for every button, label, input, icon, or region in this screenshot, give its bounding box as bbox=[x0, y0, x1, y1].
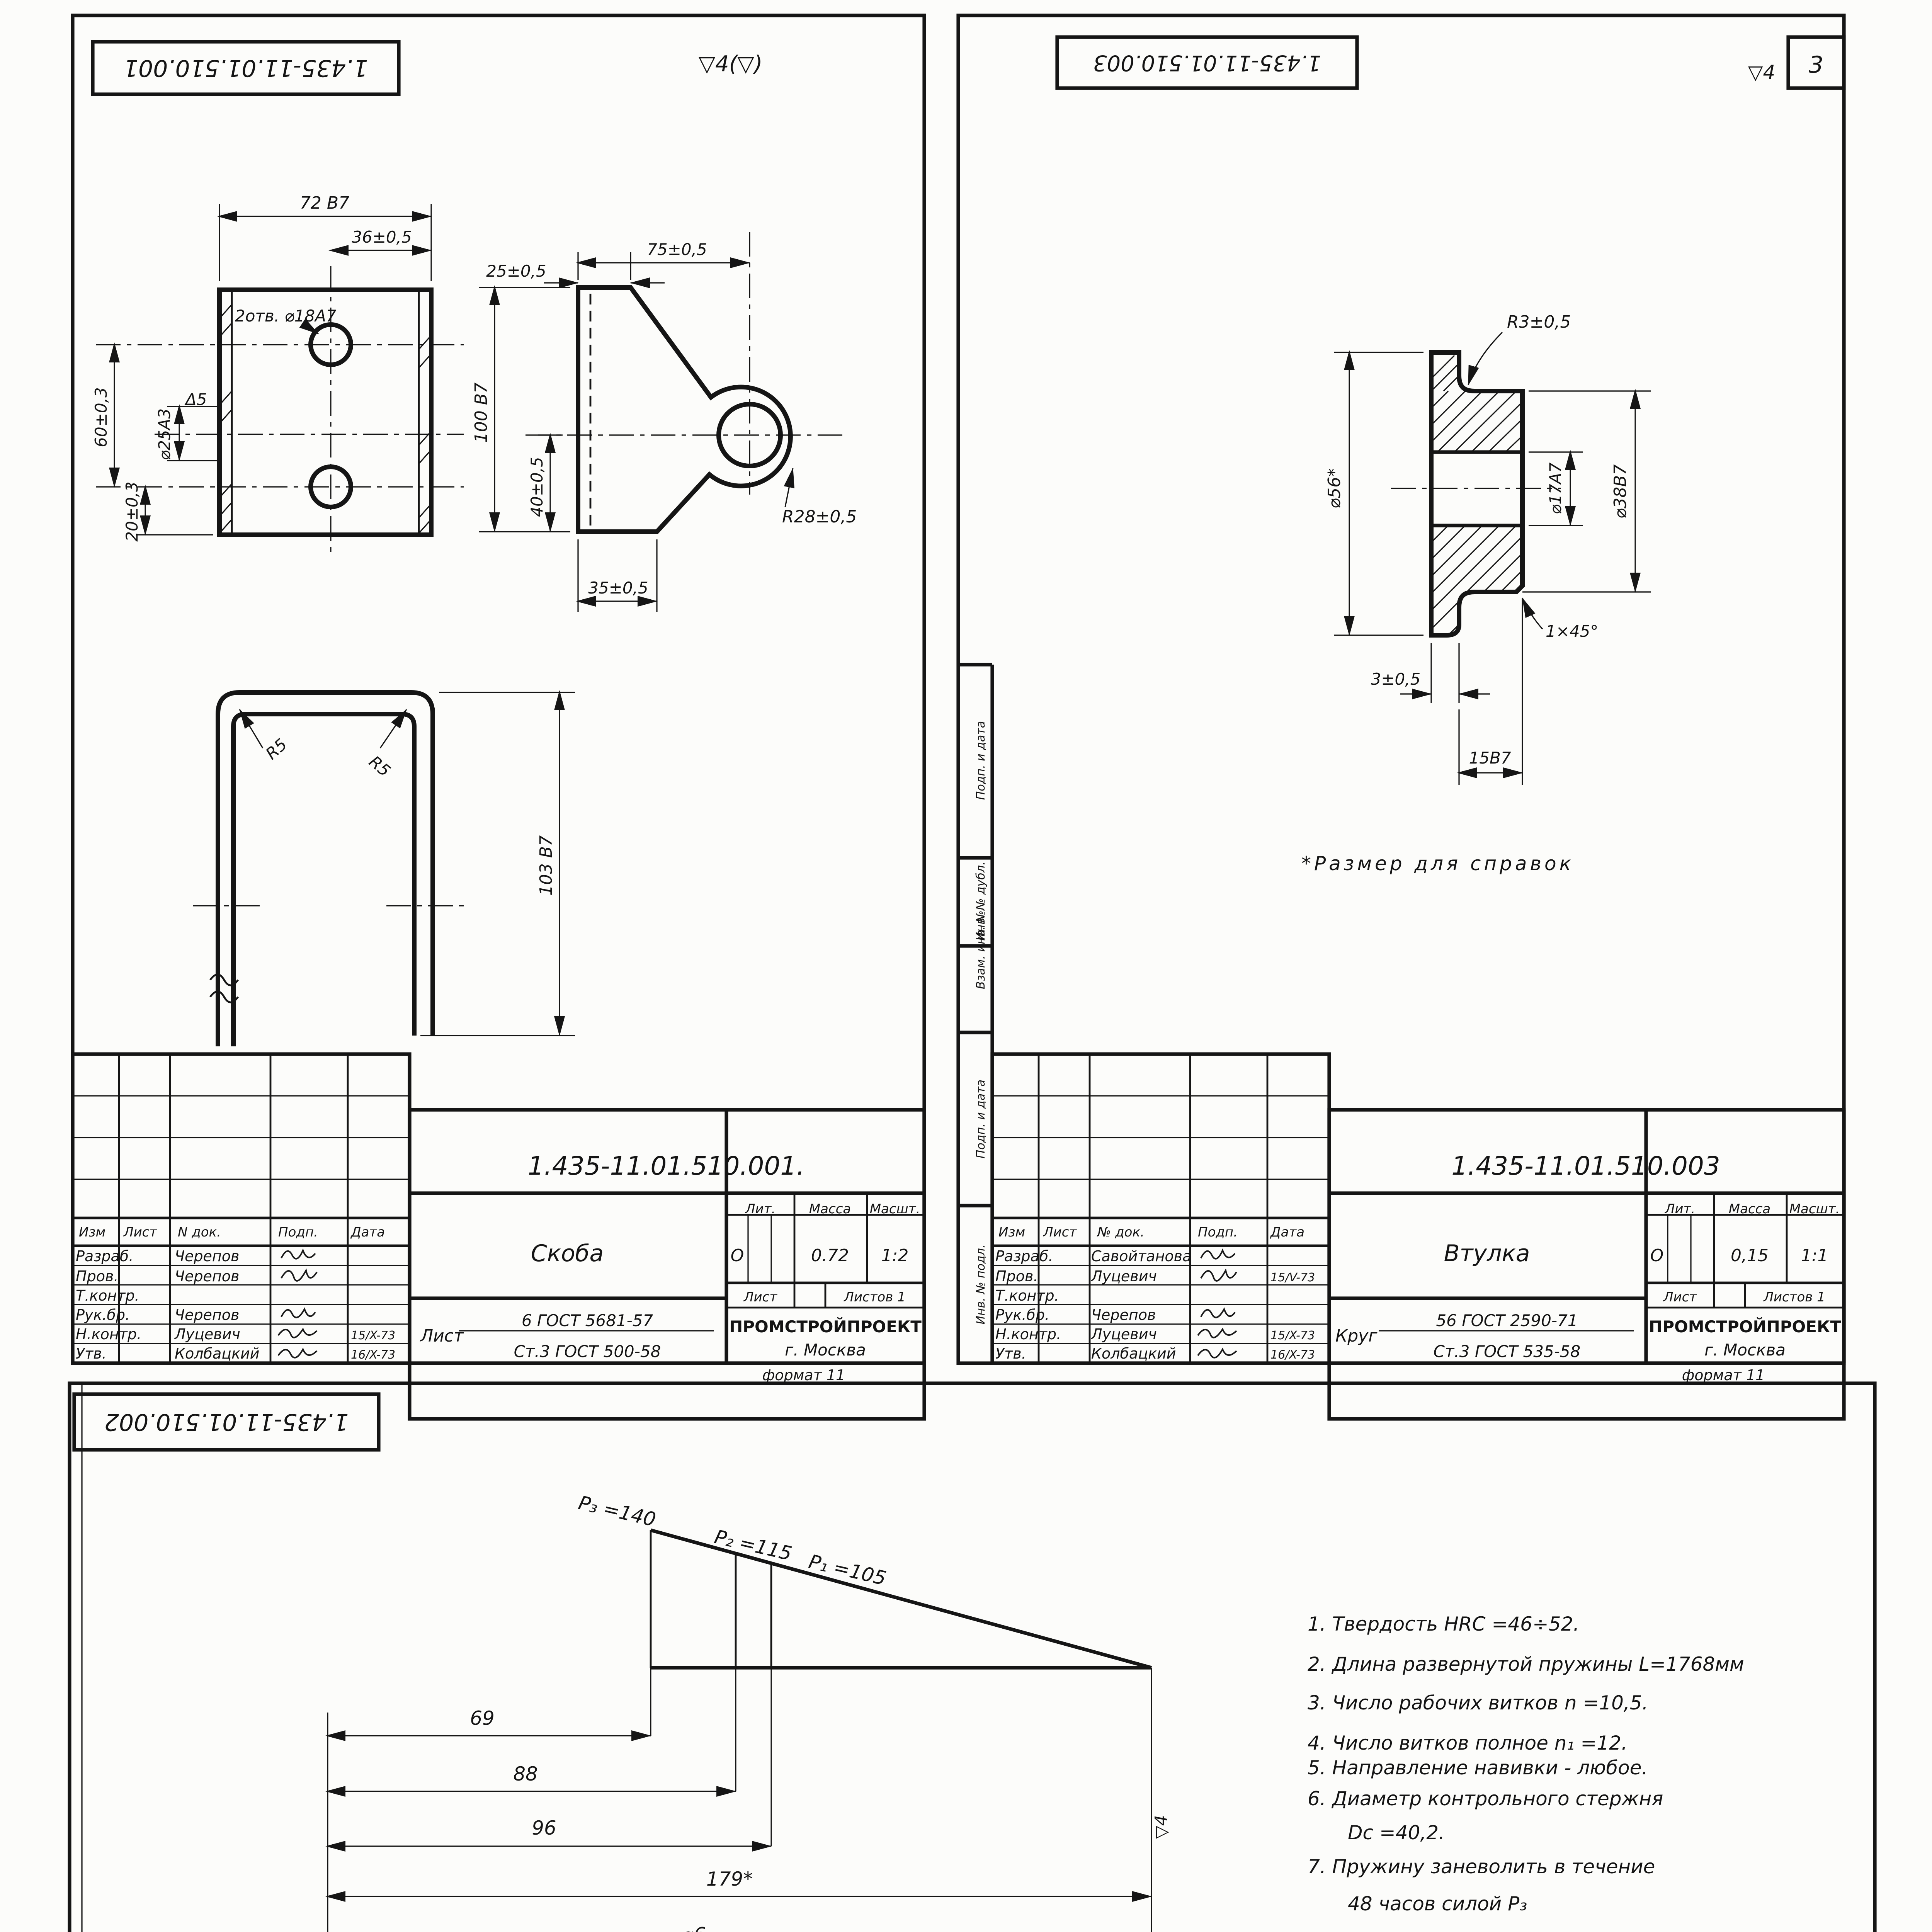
s2-sheet-label: Лист bbox=[1663, 1289, 1697, 1305]
dim-d17: ⌀17А7 bbox=[1546, 463, 1565, 514]
sheet2-corner-code: 1.435-11.01.510.003 bbox=[1093, 50, 1321, 75]
dim-35: 35±0,5 bbox=[588, 578, 648, 597]
margin-label-4: Инв. № подл. bbox=[974, 1245, 988, 1325]
dim-25a3: ⌀25А3 bbox=[155, 408, 174, 460]
s1-row4-name: Луцевич bbox=[174, 1326, 240, 1343]
s2-material-prefix: Круг bbox=[1335, 1326, 1378, 1346]
dim-100: 100 В7 bbox=[471, 383, 491, 443]
s2-mass-label: Масса bbox=[1729, 1201, 1770, 1217]
s1-mass-label: Масса bbox=[809, 1201, 851, 1217]
s1-row5-name: Колбацкий bbox=[175, 1345, 259, 1362]
s1-city: г. Москва bbox=[785, 1340, 866, 1359]
s2-col-data: Дата bbox=[1270, 1225, 1304, 1240]
s2-row4-date: 15/X-73 bbox=[1270, 1329, 1315, 1342]
dim-lug25: 25±0,5 bbox=[486, 262, 546, 281]
s2-col-podp: Подп. bbox=[1198, 1225, 1238, 1240]
s2-row0-role: Разраб. bbox=[995, 1248, 1053, 1265]
s1-scale-label: Масшт. bbox=[870, 1201, 920, 1217]
finish-mark-5: Δ5 bbox=[184, 390, 207, 409]
s2-row5-role: Утв. bbox=[995, 1345, 1026, 1362]
s1-row2-role: Т.контр. bbox=[76, 1287, 139, 1304]
s1-row0-name: Черепов bbox=[175, 1248, 239, 1265]
s1-material-top: 6 ГОСТ 5681-57 bbox=[522, 1311, 653, 1330]
note-5: 5. Направление навивки - любое. bbox=[1308, 1757, 1648, 1779]
s1-material-bottom: Ст.3 ГОСТ 500-58 bbox=[514, 1342, 661, 1361]
s2-row1-role: Пров. bbox=[995, 1268, 1038, 1285]
s2-org: ПРОМСТРОЙПРОЕКТ bbox=[1649, 1317, 1841, 1336]
s1-row5-role: Утв. bbox=[76, 1345, 107, 1362]
dim-chamfer: 1×45° bbox=[1546, 622, 1598, 641]
s2-col-izm: Изм bbox=[998, 1225, 1025, 1240]
s1-part-name: Скоба bbox=[531, 1240, 604, 1267]
s1-mass: 0.72 bbox=[811, 1246, 849, 1265]
s1-sheet-label: Лист bbox=[743, 1289, 777, 1305]
note-7b: 48 часов силой P₃ bbox=[1348, 1893, 1527, 1915]
s2-part-name: Втулка bbox=[1444, 1240, 1530, 1267]
note-1: 1. Твердость HRC =46÷52. bbox=[1308, 1613, 1579, 1635]
sheet2-reference-note: *Размер для справок bbox=[1301, 852, 1574, 875]
finish-mark-4: ▽4 bbox=[1151, 1815, 1171, 1839]
s2-material-bottom: Ст.3 ГОСТ 535-58 bbox=[1434, 1342, 1581, 1361]
s1-col-podp: Подп. bbox=[278, 1225, 318, 1240]
drawing-page: 1.435-11.01.510.001 ▽4(▽) 72 В7 36±0,5 2… bbox=[0, 0, 1932, 1932]
s1-sheets-label: Листов 1 bbox=[843, 1289, 905, 1305]
note-6b: Dс =40,2. bbox=[1348, 1821, 1445, 1844]
s2-scale-label: Масшт. bbox=[1789, 1201, 1840, 1217]
s2-scale: 1:1 bbox=[1801, 1246, 1828, 1265]
s2-format-note: формат 11 bbox=[1682, 1367, 1765, 1384]
s1-row1-name: Черепов bbox=[175, 1268, 239, 1285]
s1-lit-label: Лит. bbox=[745, 1201, 776, 1217]
sheet-page-number: 3 bbox=[1809, 51, 1823, 78]
s1-material-prefix: Лист bbox=[420, 1326, 464, 1346]
dim-20: 20±0,3 bbox=[122, 481, 141, 541]
dim-96: 96 bbox=[532, 1817, 556, 1839]
sheet2-roughness-mark: ▽4 bbox=[1748, 61, 1775, 83]
note-2-holes: 2отв. ⌀18А7 bbox=[235, 306, 337, 325]
dim-103: 103 В7 bbox=[536, 835, 556, 896]
s2-col-ndok: № док. bbox=[1097, 1225, 1145, 1240]
margin-label-2: Взам. инв. № bbox=[974, 910, 988, 989]
dim-75: 75±0,5 bbox=[647, 240, 707, 259]
s1-row5-date: 16/X-73 bbox=[351, 1348, 395, 1362]
s1-row3-role: Рук.бр. bbox=[76, 1306, 130, 1323]
dim-88: 88 bbox=[513, 1763, 538, 1785]
s1-row0-role: Разраб. bbox=[76, 1248, 133, 1265]
s1-row4-date: 15/X-73 bbox=[351, 1329, 395, 1342]
margin-label-3: Подп. и дата bbox=[974, 1080, 988, 1158]
dim-40: 40±0,5 bbox=[527, 457, 546, 517]
margin-label-0: Подп. и дата bbox=[974, 721, 988, 800]
s1-col-data: Дата bbox=[350, 1225, 385, 1240]
s1-designation: 1.435-11.01.510.001. bbox=[528, 1151, 805, 1181]
dim-60: 60±0,3 bbox=[92, 387, 111, 447]
note-7: 7. Пружину заневолить в течение bbox=[1308, 1855, 1655, 1878]
note-8: 8. Характеристика пружины, должна bbox=[1308, 1930, 1691, 1932]
sheet3-corner-code: 1.435-11.01.510.002 bbox=[104, 1408, 349, 1435]
note-2: 2. Длина развернутой пружины L=1768мм bbox=[1308, 1653, 1744, 1675]
dim-15: 15В7 bbox=[1469, 748, 1511, 767]
dim-r28: R28±0,5 bbox=[782, 507, 857, 527]
s2-row5-name: Колбацкий bbox=[1091, 1345, 1176, 1362]
dim-179: 179* bbox=[706, 1868, 753, 1890]
sheet1-roughness-mark: ▽4(▽) bbox=[699, 51, 762, 77]
s2-lit: О bbox=[1650, 1246, 1664, 1265]
s2-city: г. Москва bbox=[1704, 1340, 1786, 1359]
dim-72: 72 В7 bbox=[300, 193, 349, 213]
s1-row4-role: Н.контр. bbox=[76, 1326, 141, 1343]
s2-row3-role: Рук.бр. bbox=[995, 1306, 1049, 1323]
s2-sheets-label: Листов 1 bbox=[1763, 1289, 1825, 1305]
s2-row2-role: Т.контр. bbox=[995, 1287, 1059, 1304]
s2-row5-date: 16/X-73 bbox=[1270, 1348, 1315, 1362]
s1-row3-name: Черепов bbox=[175, 1306, 239, 1323]
s1-col-list: Лист bbox=[123, 1225, 157, 1240]
s2-mass: 0,15 bbox=[1731, 1246, 1769, 1265]
s2-row0-name: Савойтанова bbox=[1091, 1248, 1191, 1265]
s2-material-top: 56 ГОСТ 2590-71 bbox=[1436, 1311, 1578, 1330]
s1-row1-role: Пров. bbox=[76, 1268, 118, 1285]
dim-r3: R3±0,5 bbox=[1507, 312, 1571, 332]
dim-69: 69 bbox=[470, 1707, 495, 1730]
s2-lit-label: Лит. bbox=[1664, 1201, 1695, 1217]
s2-designation: 1.435-11.01.510.003 bbox=[1451, 1151, 1720, 1181]
s1-lit: О bbox=[731, 1246, 744, 1265]
s2-row1-name: Луцевич bbox=[1090, 1268, 1157, 1285]
note-6: 6. Диаметр контрольного стержня bbox=[1308, 1787, 1663, 1810]
dim-d38: ⌀38В7 bbox=[1611, 464, 1630, 519]
sheet1-corner-code: 1.435-11.01.510.001 bbox=[124, 54, 368, 82]
s2-col-list: Лист bbox=[1043, 1225, 1077, 1240]
s2-row4-role: Н.контр. bbox=[995, 1326, 1061, 1343]
s1-org: ПРОМСТРОЙПРОЕКТ bbox=[729, 1317, 922, 1336]
s2-row3-name: Черепов bbox=[1091, 1306, 1156, 1323]
note-4: 4. Число витков полное n₁ =12. bbox=[1308, 1732, 1628, 1754]
dim-36: 36±0,5 bbox=[352, 228, 412, 247]
dim-d56: ⌀56* bbox=[1325, 468, 1344, 509]
s1-format-note: формат 11 bbox=[762, 1367, 845, 1384]
s1-col-izm: Изм bbox=[79, 1225, 105, 1240]
s2-row4-name: Луцевич bbox=[1090, 1326, 1157, 1343]
dim-3: 3±0,5 bbox=[1371, 670, 1421, 689]
note-3: 3. Число рабочих витков n =10,5. bbox=[1308, 1692, 1648, 1714]
s1-col-ndok: N док. bbox=[178, 1225, 221, 1240]
dim-d6: ⌀6 bbox=[682, 1923, 706, 1932]
s1-scale: 1:2 bbox=[881, 1246, 909, 1265]
s2-row1-date: 15/V-73 bbox=[1270, 1271, 1315, 1284]
